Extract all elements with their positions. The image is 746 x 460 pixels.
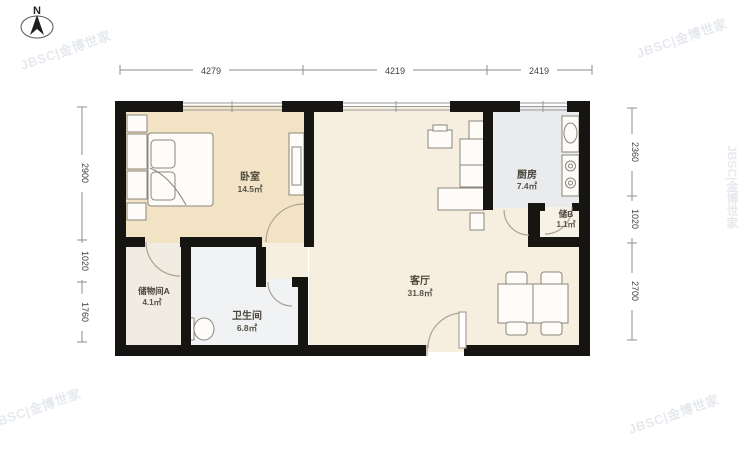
- room-label-bedroom: 卧室: [240, 170, 260, 183]
- room-area-bedroom: 14.5㎡: [237, 184, 263, 194]
- window-living: [343, 101, 450, 112]
- cabinet-box: [470, 213, 484, 230]
- dim-label-right-3: 2700: [630, 281, 640, 301]
- wardrobe-section: [127, 134, 147, 169]
- window-kitchen: [520, 101, 567, 112]
- wall-segment: [579, 101, 590, 356]
- dim-label-top-1: 4279: [201, 66, 221, 76]
- room-area-living: 31.8㎡: [407, 288, 433, 298]
- wall-segment: [181, 247, 191, 345]
- wall-segment: [115, 345, 426, 356]
- wall-segment: [528, 237, 590, 247]
- wall-segment: [115, 101, 126, 356]
- cabinet-box: [469, 121, 484, 139]
- wall-segment: [483, 112, 493, 210]
- north-label: N: [33, 5, 41, 17]
- toilet-bowl: [194, 318, 214, 340]
- room-label-living: 客厅: [409, 274, 430, 287]
- dining-chair: [541, 322, 562, 335]
- wall-segment: [126, 237, 145, 247]
- desk: [438, 188, 484, 210]
- dim-label-top-3: 2419: [529, 66, 549, 76]
- north-arrow-needle: [30, 15, 44, 35]
- bed-pillow: [151, 140, 175, 168]
- wall-segment: [256, 247, 266, 287]
- wardrobe-section: [127, 115, 147, 132]
- tv: [292, 147, 301, 185]
- dim-label-right-1: 2360: [630, 142, 640, 162]
- wall-segment: [180, 237, 262, 247]
- dining-chair: [506, 322, 527, 335]
- north-arrow: N: [21, 5, 53, 38]
- wardrobe-section: [127, 171, 147, 199]
- floor-plan-svg: 4279 4219 2419 2900 1020 1760 2360 1020 …: [0, 0, 746, 460]
- dim-label-left-1: 2900: [80, 163, 90, 183]
- room-label-bathroom: 卫生间: [232, 309, 262, 322]
- kitchen-sink-basin: [564, 123, 577, 143]
- wall-segment: [298, 287, 308, 345]
- stove-burner-center: [569, 164, 573, 168]
- sofa: [460, 139, 484, 187]
- room-area-storage-a: 4.1㎡: [142, 297, 161, 307]
- dim-label-right-2: 1020: [630, 209, 640, 229]
- room-area-storage-b: 1.1㎡: [556, 219, 575, 229]
- wall-segment: [450, 101, 520, 112]
- floor-plan-page: JBSC|金博世家 JBSC|金博世家 JBSC|金博世家 JBSC|金博世家 …: [0, 0, 746, 460]
- dining-chair: [541, 272, 562, 285]
- room-label-storage-b: 储B: [558, 209, 574, 219]
- wall-segment: [464, 345, 590, 356]
- chair-back: [433, 125, 447, 131]
- wardrobe-section: [127, 203, 146, 220]
- room-area-bathroom: 6.8㎡: [237, 323, 258, 333]
- wall-segment: [292, 277, 308, 287]
- dining-chair: [506, 272, 527, 285]
- window-bedroom: [183, 101, 282, 112]
- entry-door-leaf: [459, 312, 466, 348]
- dim-label-left-2: 1020: [80, 251, 90, 271]
- room-area-kitchen: 7.4㎡: [517, 181, 538, 191]
- wall-segment: [282, 101, 343, 112]
- chair: [428, 130, 452, 148]
- dim-label-left-3: 1760: [80, 302, 90, 322]
- dim-label-top-2: 4219: [385, 66, 405, 76]
- wall-segment: [304, 112, 314, 247]
- room-label-kitchen: 厨房: [517, 168, 537, 181]
- storage-a-floor: [120, 243, 186, 350]
- stove-burner-center: [569, 181, 573, 185]
- wall-segment: [572, 203, 590, 211]
- room-label-storage-a: 储物间A: [137, 286, 170, 296]
